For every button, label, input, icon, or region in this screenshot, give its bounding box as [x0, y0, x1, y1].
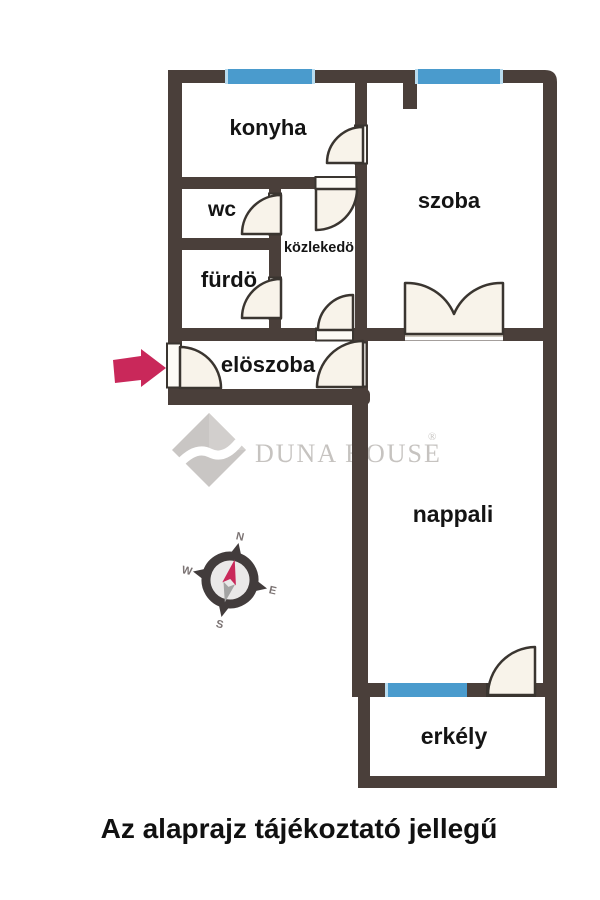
kozlekedo-eloszoba-door-swing [318, 295, 353, 330]
floor-plan-svg: DUNA HOUSE ® [0, 0, 600, 900]
compass-label-n: N [235, 530, 245, 543]
window-cap [500, 69, 503, 84]
room-label-kozlekedo: közlekedö [284, 240, 354, 256]
entrance-door-swing [180, 347, 221, 388]
duna-house-logo: DUNA HOUSE ® [172, 413, 442, 487]
room-label-erkely: erkély [421, 723, 488, 749]
eloszoba-nappali-door-swing [317, 341, 363, 387]
entrance-arrow-icon [113, 349, 166, 387]
window-cap [312, 69, 315, 84]
wall-pier [403, 83, 417, 109]
window-cap [225, 69, 228, 84]
floor-plan-page: DUNA HOUSE ® [0, 0, 600, 900]
compass-label-e: E [268, 584, 278, 597]
wall-eloszoba-bottom [168, 389, 370, 405]
szoba-window [418, 69, 500, 84]
room-label-nappali: nappali [413, 501, 494, 527]
konyha-szoba-door-swing [327, 127, 363, 163]
logo-registered-mark: ® [428, 431, 438, 443]
room-label-wc: wc [207, 198, 236, 221]
room-label-furdo: fürdö [201, 267, 257, 292]
wall-erkely-bottom [358, 776, 557, 788]
window-cap [415, 69, 418, 84]
balcony-door-swing [488, 647, 535, 695]
room-label-konyha: konyha [229, 115, 307, 140]
wall-erkely-right [545, 697, 557, 788]
wall-wc-bottom [168, 238, 281, 250]
konyha-kozlekedo-door-swing [316, 189, 357, 230]
szoba-nappali-double-door-swing [405, 283, 503, 334]
konyha-kozlekedo-door-leaf [316, 177, 357, 189]
logo-wordmark: DUNA HOUSE [255, 439, 442, 468]
caption-text: Az alaprajz tájékoztató jellegű [101, 813, 498, 844]
compass-label-s: S [215, 618, 225, 631]
wall-konyha-szoba [355, 83, 367, 333]
compass-ring [201, 551, 259, 609]
window-cap [385, 683, 388, 697]
room-label-szoba: szoba [418, 188, 481, 213]
compass-label-w: W [180, 564, 193, 578]
room-label-eloszoba: elöszoba [221, 352, 316, 377]
compass-icon: N E S W [170, 520, 287, 641]
konyha-window [228, 69, 312, 84]
wall-erkely-left [358, 697, 370, 788]
wall-nappali-left [352, 341, 368, 697]
wc-door-swing [242, 195, 281, 234]
nappali-window [388, 683, 467, 697]
